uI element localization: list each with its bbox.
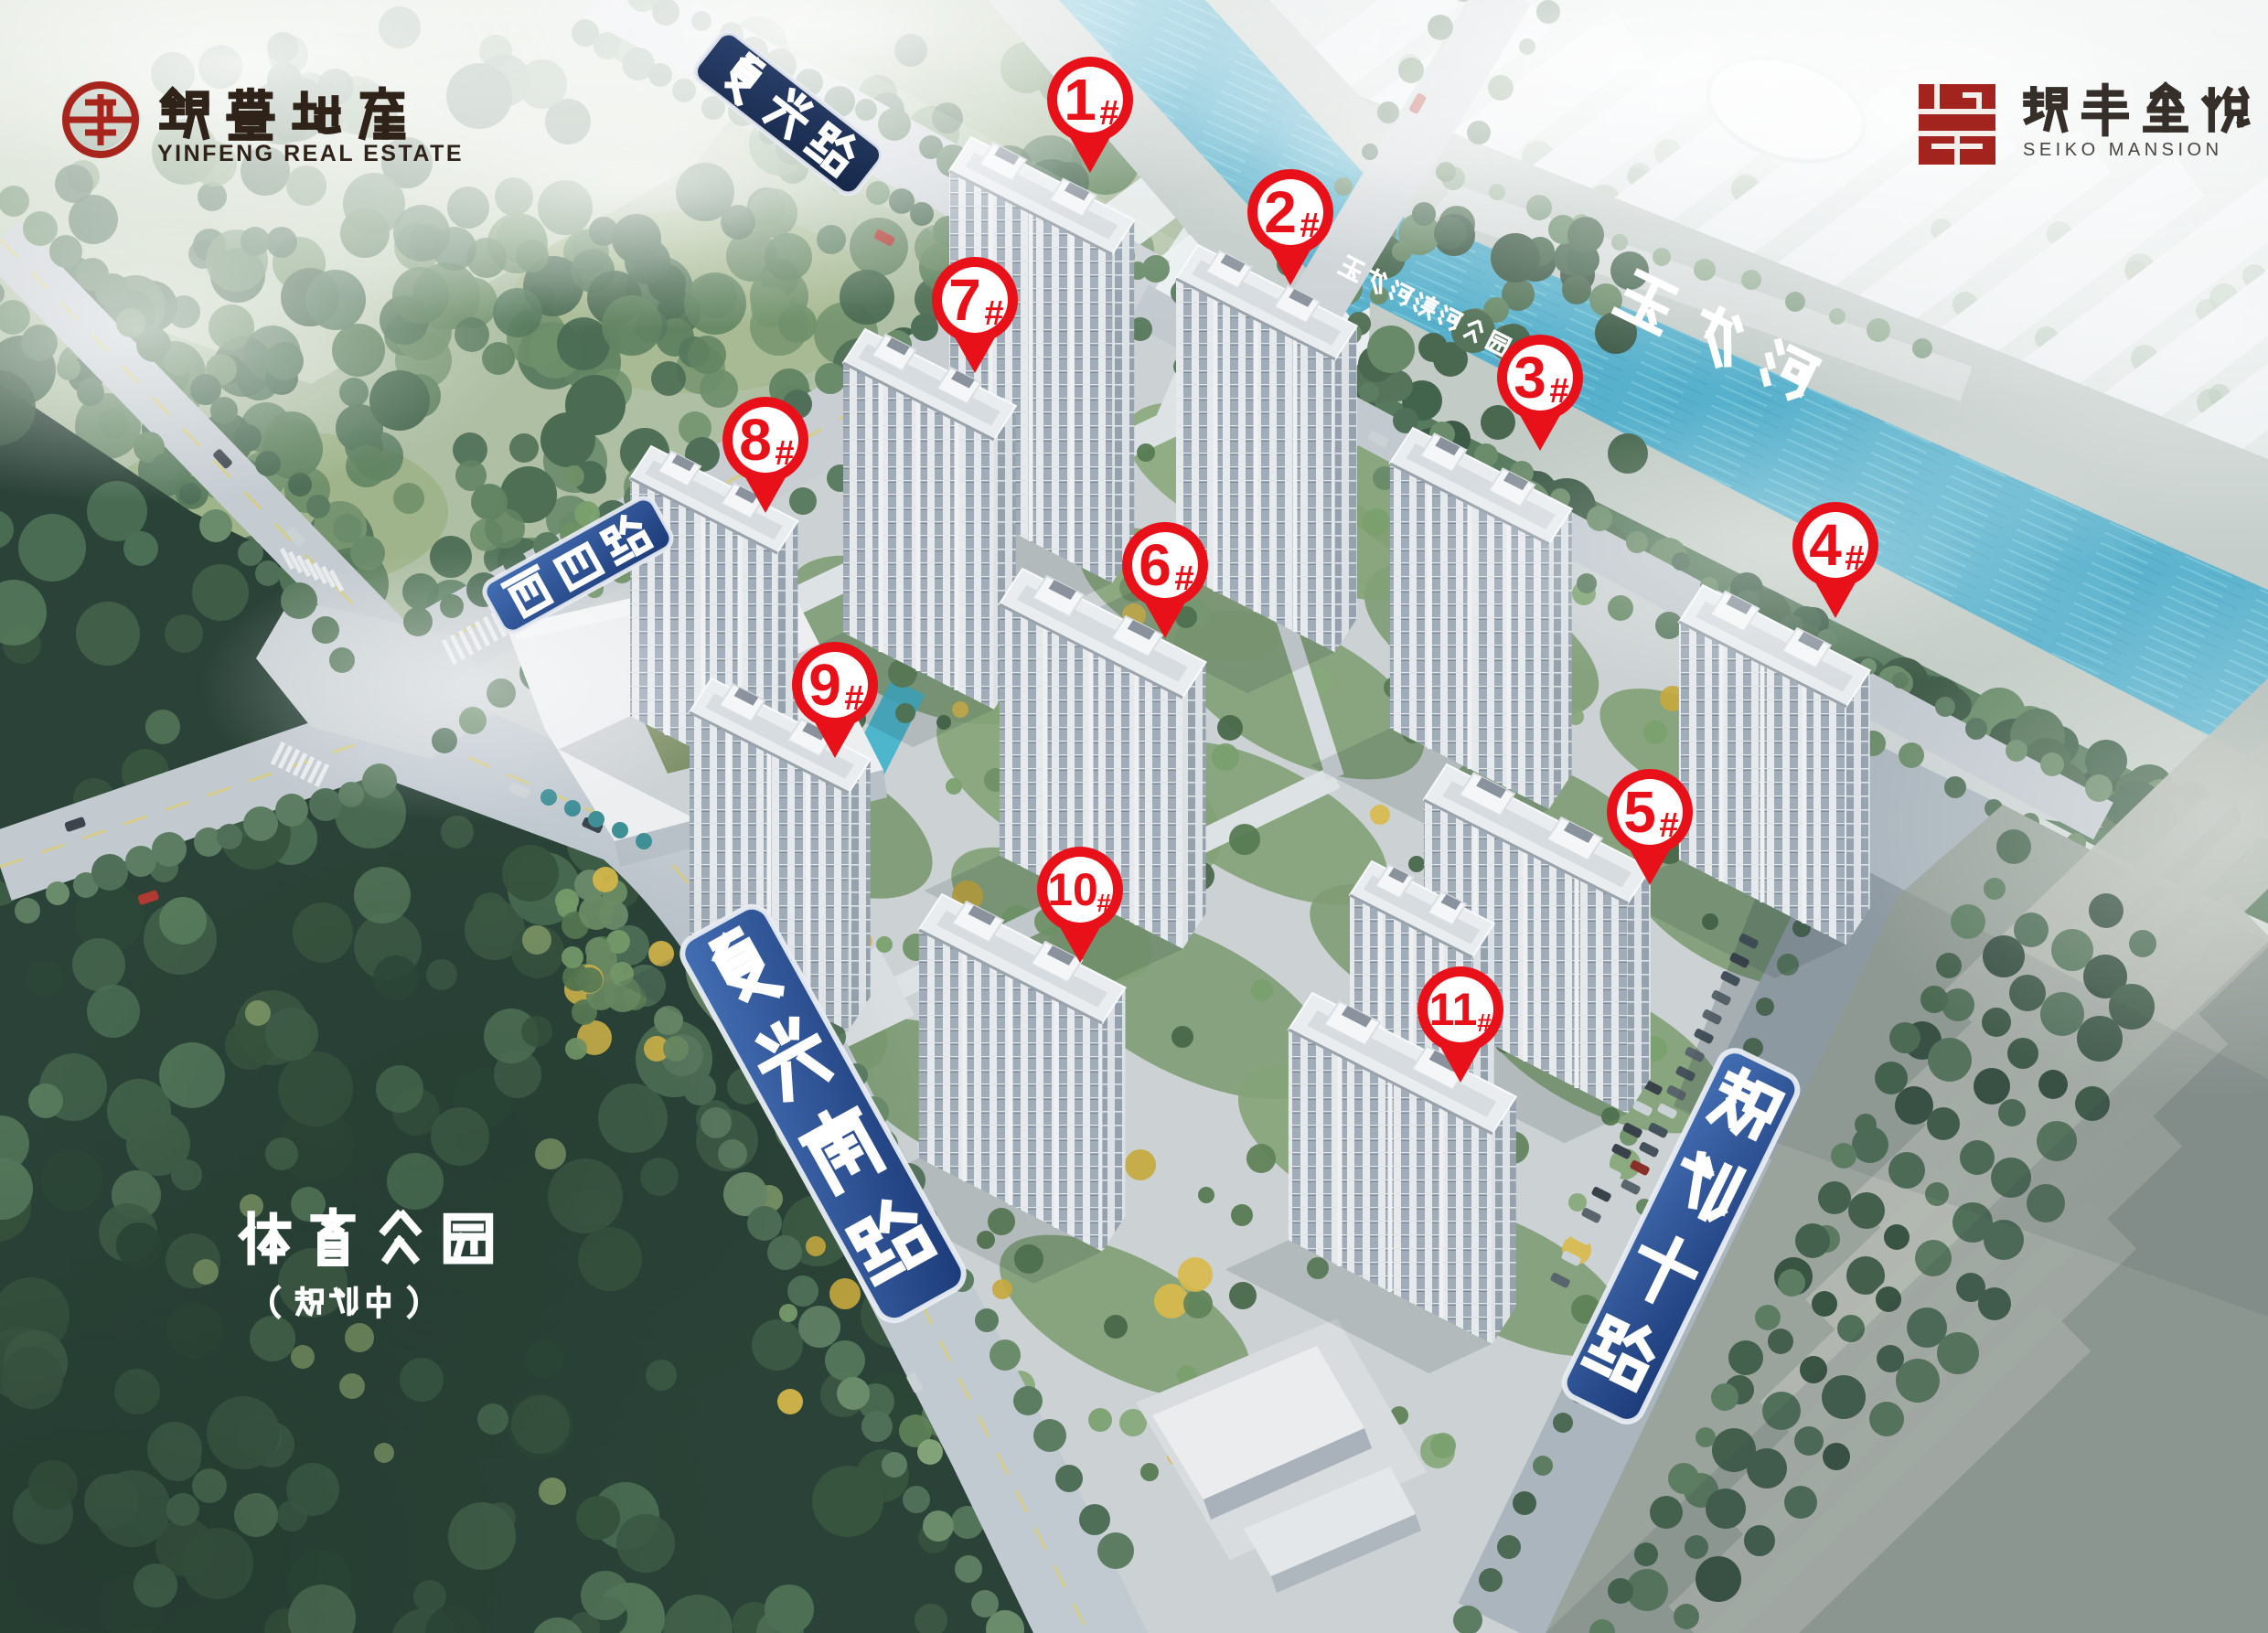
svg-text:#: # — [1099, 94, 1118, 133]
svg-text:5: 5 — [1623, 779, 1656, 845]
svg-text:#: # — [1845, 539, 1864, 578]
svg-text:#: # — [1300, 207, 1319, 245]
svg-text:#: # — [1097, 889, 1111, 917]
svg-text:4: 4 — [1809, 512, 1842, 578]
svg-text:2: 2 — [1264, 179, 1297, 245]
svg-text:#: # — [984, 294, 1003, 333]
svg-text:YINFENG REAL ESTATE: YINFENG REAL ESTATE — [157, 141, 464, 166]
svg-text:3: 3 — [1514, 345, 1546, 411]
svg-text:8: 8 — [739, 407, 772, 473]
svg-text:9: 9 — [808, 652, 841, 718]
svg-text:7: 7 — [948, 267, 981, 333]
svg-text:#: # — [844, 679, 863, 718]
svg-text:1: 1 — [1064, 67, 1097, 133]
svg-text:#: # — [1549, 372, 1568, 411]
svg-text:11: 11 — [1429, 984, 1478, 1035]
svg-text:#: # — [1477, 1009, 1492, 1037]
svg-text:#: # — [1659, 806, 1678, 845]
svg-text:#: # — [1174, 560, 1193, 598]
svg-text:#: # — [775, 434, 794, 473]
svg-text:SEIKO MANSION: SEIKO MANSION — [2023, 140, 2223, 160]
svg-text:10: 10 — [1047, 864, 1098, 915]
svg-text:6: 6 — [1139, 532, 1171, 598]
